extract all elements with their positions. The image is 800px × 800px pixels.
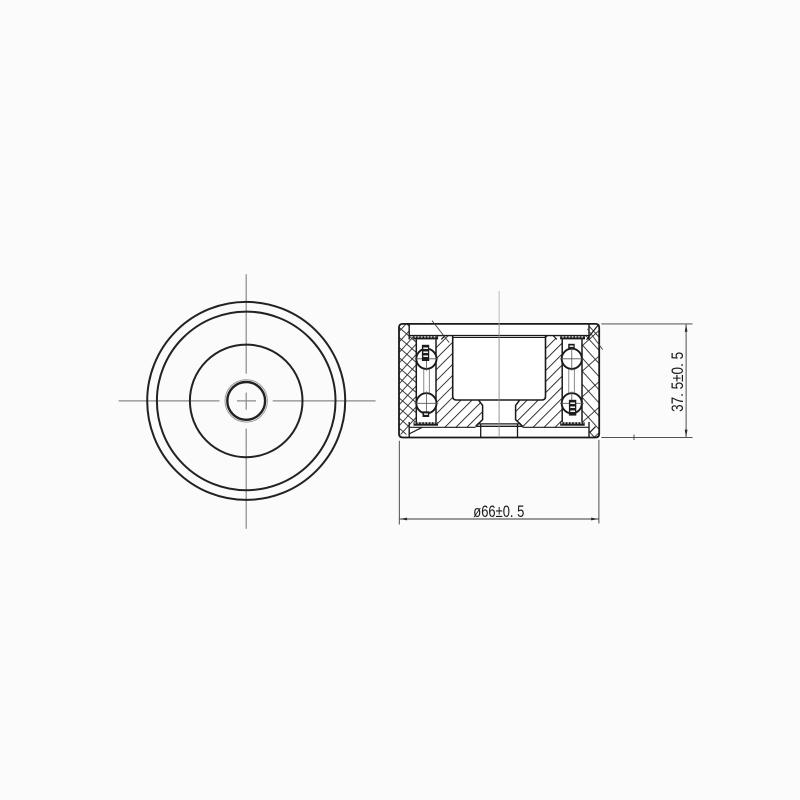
svg-text:37. 5±0. 5: 37. 5±0. 5	[669, 352, 687, 412]
svg-text:ø66±0. 5: ø66±0. 5	[473, 503, 524, 521]
